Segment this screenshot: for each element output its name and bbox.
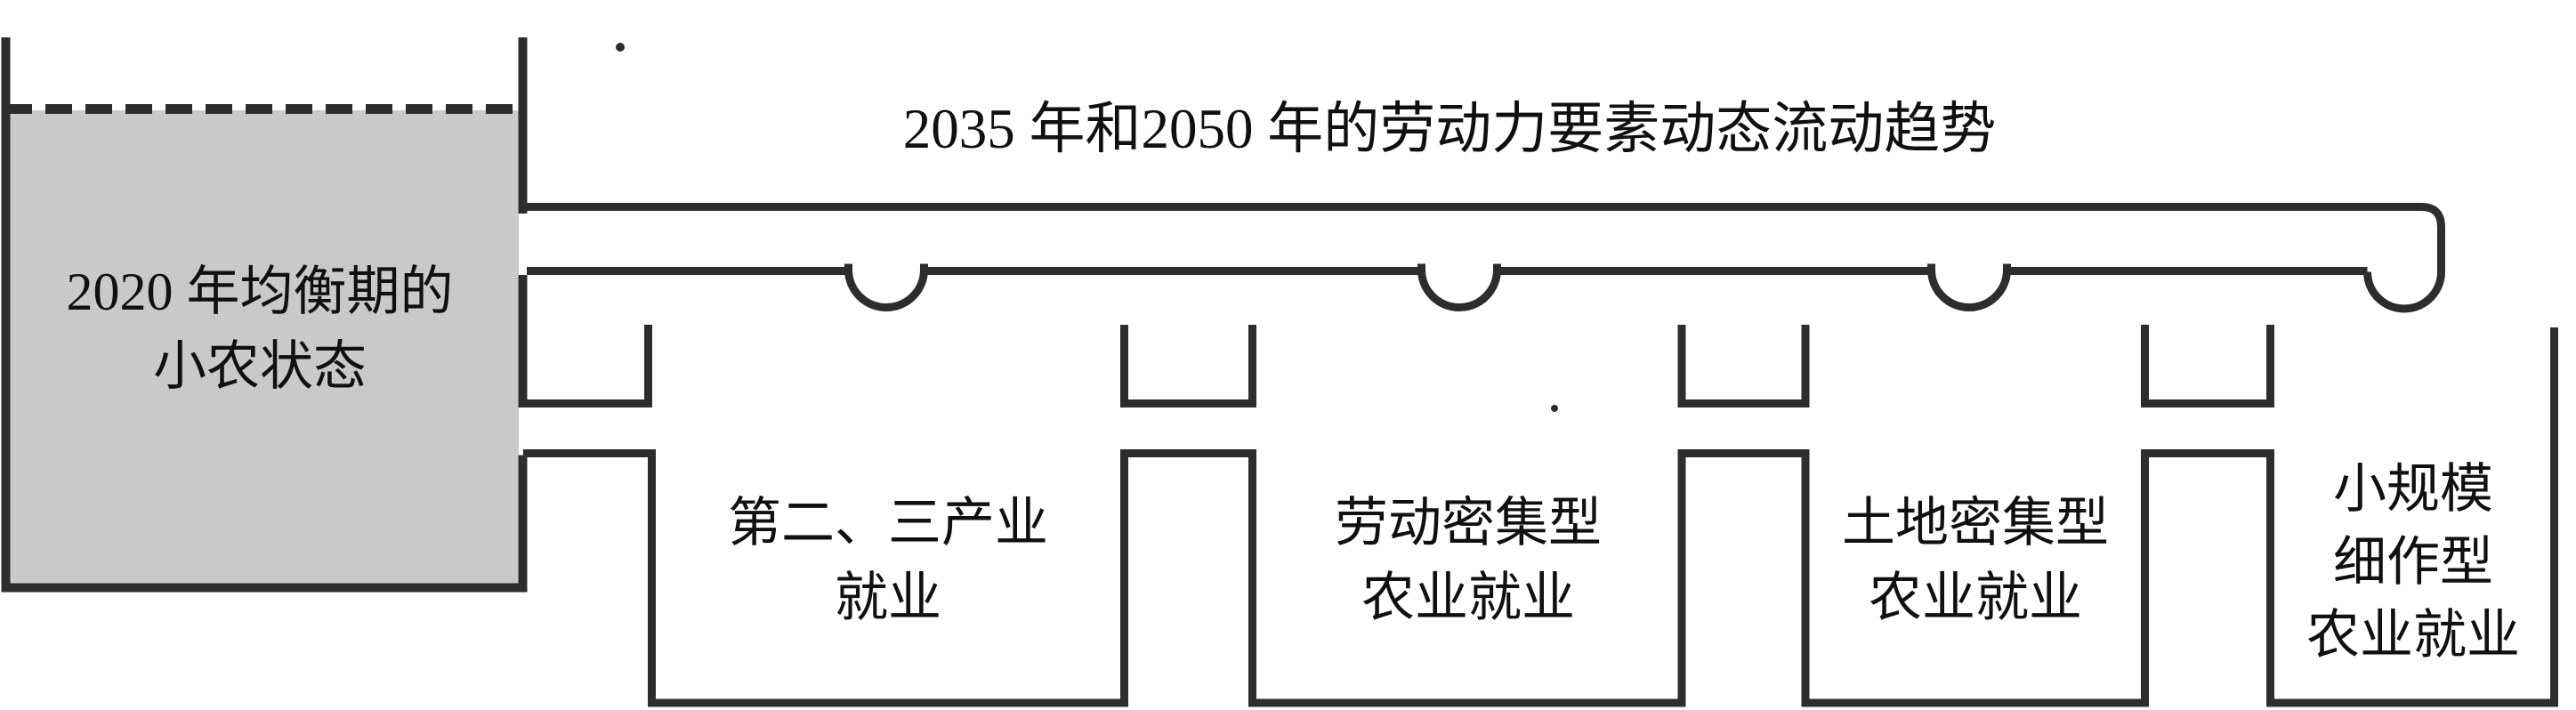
stray-dot-1 <box>616 43 625 52</box>
stray-dot-2 <box>1551 405 1558 412</box>
diagram-canvas: 2035 年和2050 年的劳动力要素动态流动趋势 2020 年均衡期的 小农状… <box>0 0 2576 710</box>
overflow-cup-3 <box>2145 325 2271 404</box>
container-1-label-line-2: 就业 <box>835 569 941 627</box>
pipe-outlet-u-1 <box>849 264 925 308</box>
container-3-label-line-2: 农业就业 <box>1869 569 2082 627</box>
tank-label-line-1: 2020 年均衡期的 <box>67 262 454 321</box>
container-4-label-line-1: 小规模 <box>2333 460 2493 519</box>
labor-flow-diagram: 2035 年和2050 年的劳动力要素动态流动趋势 2020 年均衡期的 小农状… <box>0 0 2576 710</box>
pipe-outlet-u-3 <box>1932 264 2007 308</box>
pipe-outlet-u-2 <box>1422 264 1498 308</box>
tank-label-line-2: 小农状态 <box>153 337 367 396</box>
container-4-label-line-2: 细作型 <box>2333 533 2493 592</box>
overflow-cup-0 <box>525 325 649 404</box>
container-2-label-line-1: 劳动密集型 <box>1335 494 1602 553</box>
container-1-label-line-1: 第二、三产业 <box>728 494 1048 553</box>
overflow-cup-2 <box>1682 325 1805 404</box>
container-2-label-line-2: 农业就业 <box>1361 569 1575 627</box>
pipe-title: 2035 年和2050 年的劳动力要素动态流动趋势 <box>903 98 1997 160</box>
container-3-label-line-1: 土地密集型 <box>1842 494 2109 553</box>
container-4-label-line-3: 农业就业 <box>2306 606 2520 665</box>
overflow-cup-1 <box>1125 325 1253 404</box>
